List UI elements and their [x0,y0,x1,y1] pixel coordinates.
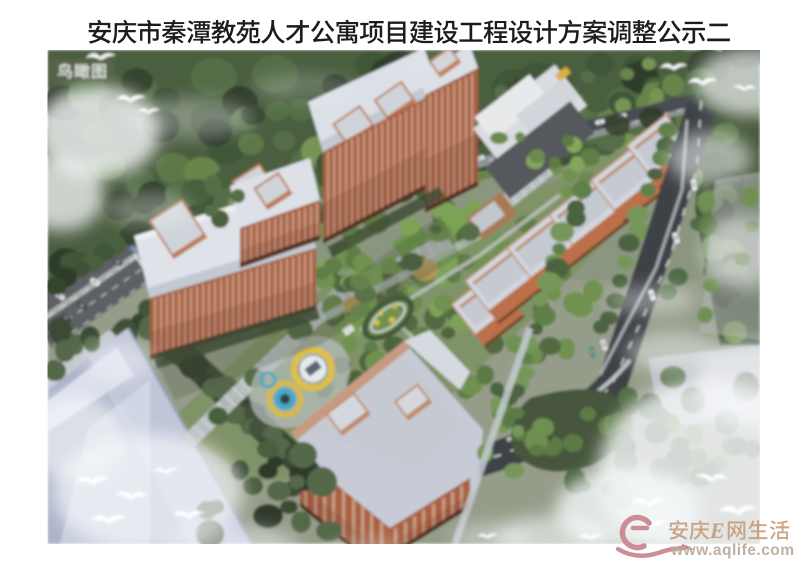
svg-text:E: E [709,518,725,543]
svg-text:www.aqlife.com: www.aqlife.com [670,542,795,559]
